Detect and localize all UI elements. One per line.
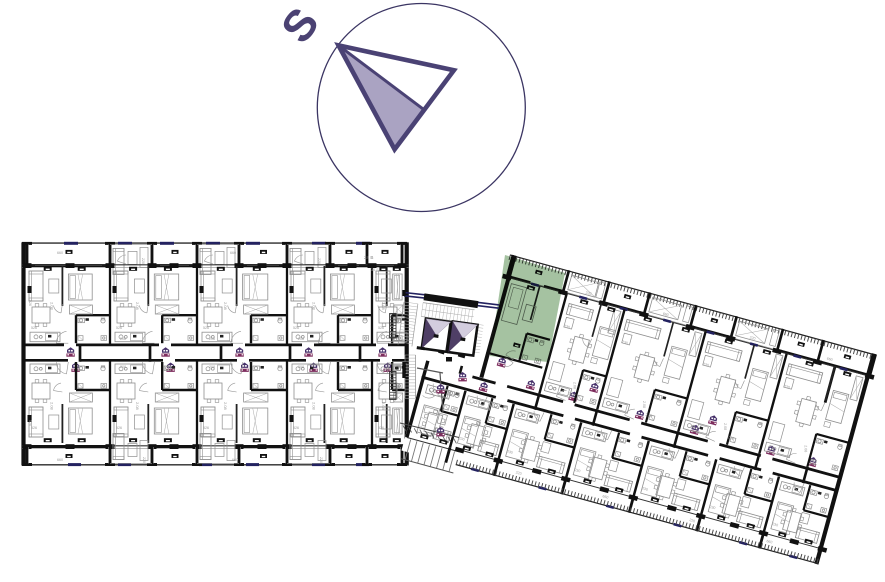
svg-text:2.08: 2.08: [804, 445, 808, 452]
svg-text:2.08: 2.08: [50, 402, 55, 411]
svg-text:2.08: 2.08: [223, 402, 228, 411]
svg-text:526: 526: [203, 326, 209, 330]
svg-text:2.08: 2.08: [381, 402, 386, 411]
svg-text:220: 220: [141, 258, 145, 264]
svg-text:2.08: 2.08: [135, 402, 140, 411]
svg-text:208: 208: [120, 337, 126, 341]
svg-text:2.08: 2.08: [573, 382, 577, 389]
svg-text:2.08: 2.08: [312, 302, 317, 311]
svg-text:526: 526: [31, 426, 37, 430]
svg-text:24 B: 24 B: [364, 255, 373, 260]
svg-text:2.08: 2.08: [135, 302, 140, 311]
svg-text:2.08: 2.08: [723, 423, 727, 430]
svg-text:526: 526: [293, 426, 299, 430]
svg-text:2.08: 2.08: [50, 302, 55, 311]
svg-text:526: 526: [116, 426, 122, 430]
svg-text:660: 660: [57, 251, 63, 255]
svg-text:526: 526: [31, 326, 37, 330]
svg-text:526: 526: [116, 326, 122, 330]
svg-text:526: 526: [28, 420, 32, 426]
svg-text:220: 220: [317, 258, 321, 264]
svg-text:208: 208: [120, 365, 126, 369]
svg-text:660: 660: [232, 458, 238, 462]
svg-text:34 S: 34 S: [371, 268, 379, 272]
svg-text:220: 220: [142, 457, 146, 463]
svg-text:526: 526: [293, 326, 299, 330]
svg-text:660: 660: [57, 458, 63, 462]
svg-text:208: 208: [209, 337, 215, 341]
svg-text:526: 526: [28, 300, 32, 306]
svg-text:220: 220: [319, 457, 323, 463]
svg-text:526: 526: [378, 326, 384, 330]
svg-text:526: 526: [378, 426, 384, 430]
svg-text:526: 526: [203, 426, 209, 430]
svg-text:2.08: 2.08: [381, 302, 386, 311]
svg-text:660: 660: [230, 251, 236, 255]
svg-text:208: 208: [209, 365, 215, 369]
svg-text:208: 208: [298, 365, 304, 369]
svg-text:2.08: 2.08: [223, 302, 228, 311]
svg-text:208: 208: [298, 337, 304, 341]
svg-text:2.08: 2.08: [312, 402, 317, 411]
svg-text:2.08: 2.08: [642, 401, 646, 408]
